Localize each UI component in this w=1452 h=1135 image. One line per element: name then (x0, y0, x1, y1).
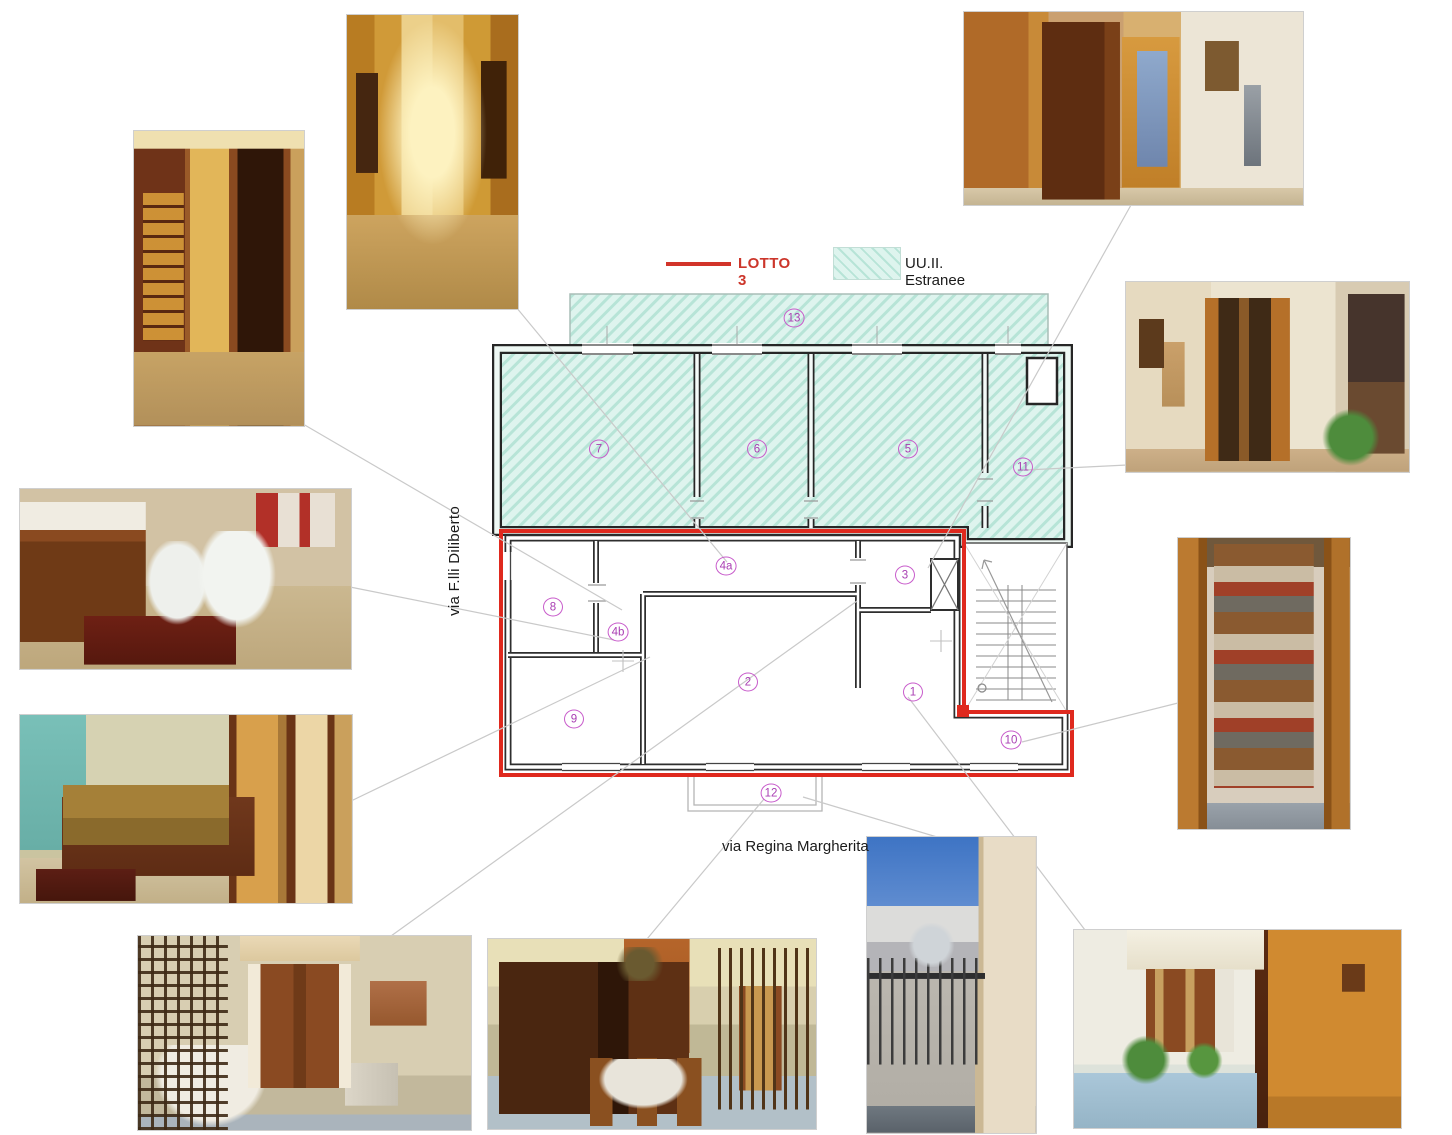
room-badge-11: 11 (1013, 458, 1033, 477)
photo-room-corner-window (1073, 929, 1402, 1129)
room-badge-5: 5 (898, 440, 918, 459)
room-badge-7: 7 (589, 440, 609, 459)
photo-picture-corridor (346, 14, 519, 310)
room-badge-10: 10 (1001, 731, 1022, 750)
estranee-hatch-swatch (833, 247, 901, 280)
photo-balcony-street-view (866, 836, 1037, 1134)
room-badge-8: 8 (543, 598, 563, 617)
street-label-regina-margherita: via Regina Margherita (722, 838, 869, 855)
room-badge-4a: 4a (716, 557, 737, 576)
lotto-line-swatch (666, 262, 731, 266)
street-label-diliberto: via F.lli Diliberto (446, 487, 463, 635)
room-badge-2: 2 (738, 673, 758, 692)
room-badge-12: 12 (761, 784, 782, 803)
photo-entrance-open-doors (1125, 281, 1410, 473)
photo-living-dining-room (487, 938, 817, 1130)
room-badge-4b: 4b (608, 623, 629, 642)
floorplan-exhibit-page: LOTTO 3 UU.II. Estranee via F.lli Dilibe… (0, 0, 1452, 1135)
room-badge-13: 13 (784, 309, 805, 328)
photo-hallway-glass-door (133, 130, 305, 427)
photo-bedroom (19, 714, 353, 904)
room-badge-3: 3 (895, 566, 915, 585)
photo-dining-room (137, 935, 472, 1131)
room-badge-6: 6 (747, 440, 767, 459)
lotto-label: LOTTO 3 (738, 255, 791, 289)
photo-antique-hall (963, 11, 1304, 206)
photo-storage-closet (1177, 537, 1351, 830)
room-badge-1: 1 (903, 683, 923, 702)
estranee-label: UU.II. Estranee (905, 255, 965, 289)
photo-bathroom (19, 488, 352, 670)
room-badge-9: 9 (564, 710, 584, 729)
